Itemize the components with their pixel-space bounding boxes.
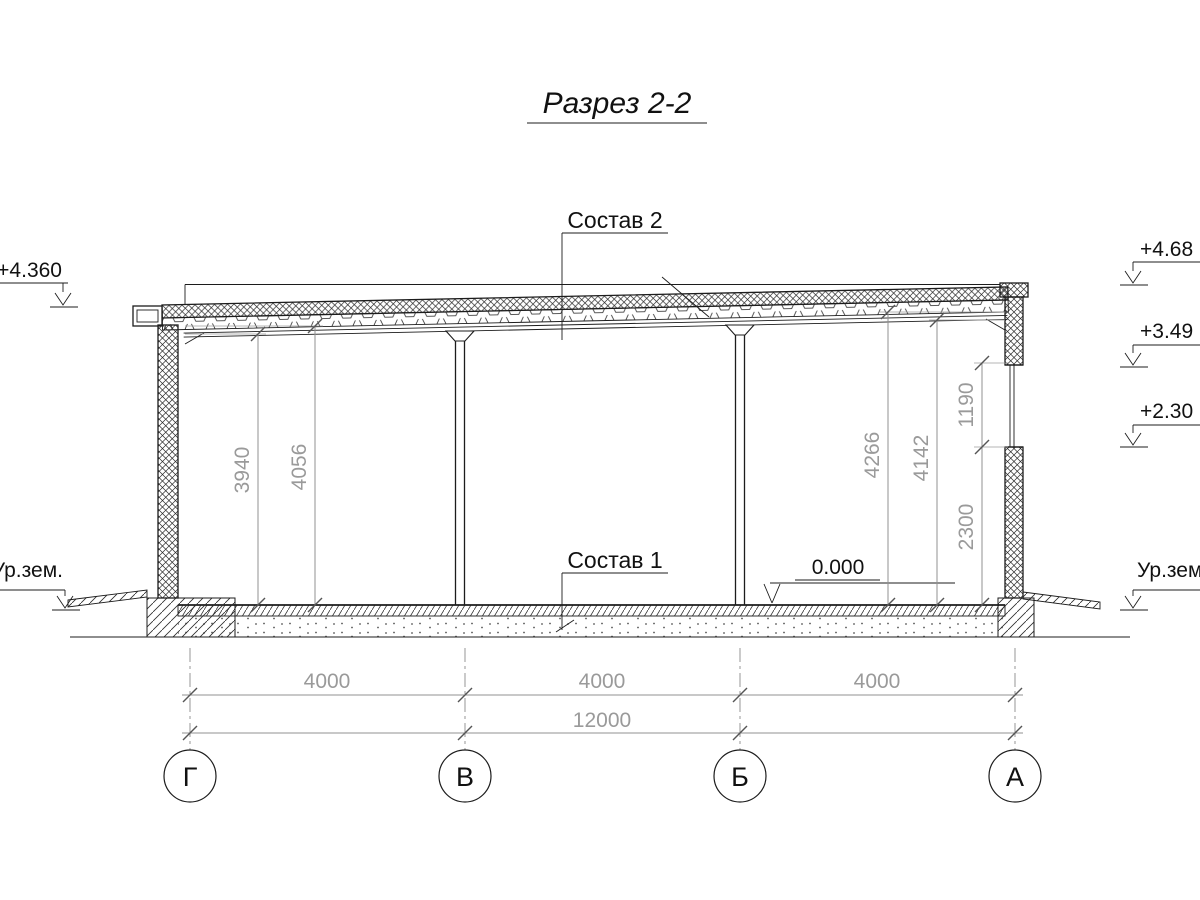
elevation-right-top: +4.68	[1120, 238, 1200, 285]
column-axis-v	[446, 331, 474, 605]
floor-screed	[178, 605, 1005, 616]
apron-right	[1023, 592, 1100, 609]
elevation-left-top: +4.360	[0, 259, 78, 307]
drawing-sheet: Разрез 2-2	[0, 0, 1200, 900]
axis-label-g: Г	[183, 762, 198, 792]
axis-bubble-g: Г	[164, 750, 216, 802]
dim-span-3: 4000	[854, 670, 901, 693]
column-capital	[726, 325, 754, 335]
right-wall-lower	[1005, 447, 1023, 598]
parapet-cap	[1000, 283, 1028, 297]
dim-span-2: 4000	[579, 670, 626, 693]
column-axis-b	[726, 325, 754, 605]
elevation-zero: 0.000	[764, 556, 955, 603]
axis-bubble-v: В	[439, 750, 491, 802]
left-wall	[158, 325, 178, 598]
axis-label-b: Б	[731, 762, 749, 792]
right-wall-upper	[1005, 297, 1023, 365]
elevation-arrow	[1125, 596, 1141, 608]
dim-span-1: 4000	[304, 670, 351, 693]
elevation-arrow	[55, 293, 71, 305]
axis-bubble-b: Б	[714, 750, 766, 802]
floor-composition-label: Состав 1	[567, 547, 662, 573]
axis-label-a: А	[1006, 762, 1024, 792]
ground-level-right-label: Ур.зем.	[1137, 559, 1200, 582]
elevation-arrow	[1125, 271, 1141, 283]
elevation-right-mid: +3.49	[1120, 320, 1200, 367]
right-wall	[1000, 283, 1028, 598]
dim-total: 12000	[573, 709, 631, 732]
window	[1005, 365, 1023, 447]
ground-level-left-label: Ур.зем.	[0, 559, 63, 582]
axis-label-v: В	[456, 762, 474, 792]
roof-composition-label: Состав 2	[567, 207, 662, 233]
drawing-title: Разрез 2-2	[527, 87, 707, 123]
elevation-left-top-value: +4.360	[0, 259, 62, 282]
axis-bubbles: Г В Б А	[164, 750, 1041, 802]
column-capital	[446, 331, 474, 341]
right-console	[986, 319, 1005, 330]
ground-level-right: Ур.зем.	[1120, 559, 1200, 610]
elevation-right-low: +2.30	[1120, 400, 1200, 447]
apron-left	[68, 590, 147, 607]
left-footing	[68, 590, 235, 637]
axis-bubble-a: А	[989, 750, 1041, 802]
right-footing	[998, 592, 1100, 637]
dim-left-2: 4056	[288, 444, 311, 491]
footing-left	[147, 598, 235, 637]
horizontal-dimensions: 4000 4000 4000 12000	[182, 648, 1023, 750]
dim-right-2: 4142	[910, 435, 933, 482]
elevation-right-low-value: +2.30	[1140, 400, 1193, 423]
dim-left-1: 3940	[231, 447, 254, 494]
gutter-detail	[133, 306, 162, 326]
elevation-right-top-value: +4.68	[1140, 238, 1193, 261]
footing-right	[998, 598, 1034, 637]
elevation-arrow	[1125, 433, 1141, 445]
drawing-title-text: Разрез 2-2	[543, 87, 692, 120]
dim-window-sill: 2300	[955, 504, 978, 551]
dim-right-1: 4266	[861, 432, 884, 479]
floor-base-layer	[178, 616, 1005, 637]
elevation-arrow	[1125, 353, 1141, 365]
elevation-arrow	[764, 584, 780, 603]
section-drawing: Разрез 2-2	[0, 0, 1200, 900]
elevation-right-mid-value: +3.49	[1140, 320, 1193, 343]
dim-window-height: 1190	[955, 382, 978, 427]
left-console	[185, 333, 204, 344]
elevation-zero-value: 0.000	[812, 556, 865, 579]
